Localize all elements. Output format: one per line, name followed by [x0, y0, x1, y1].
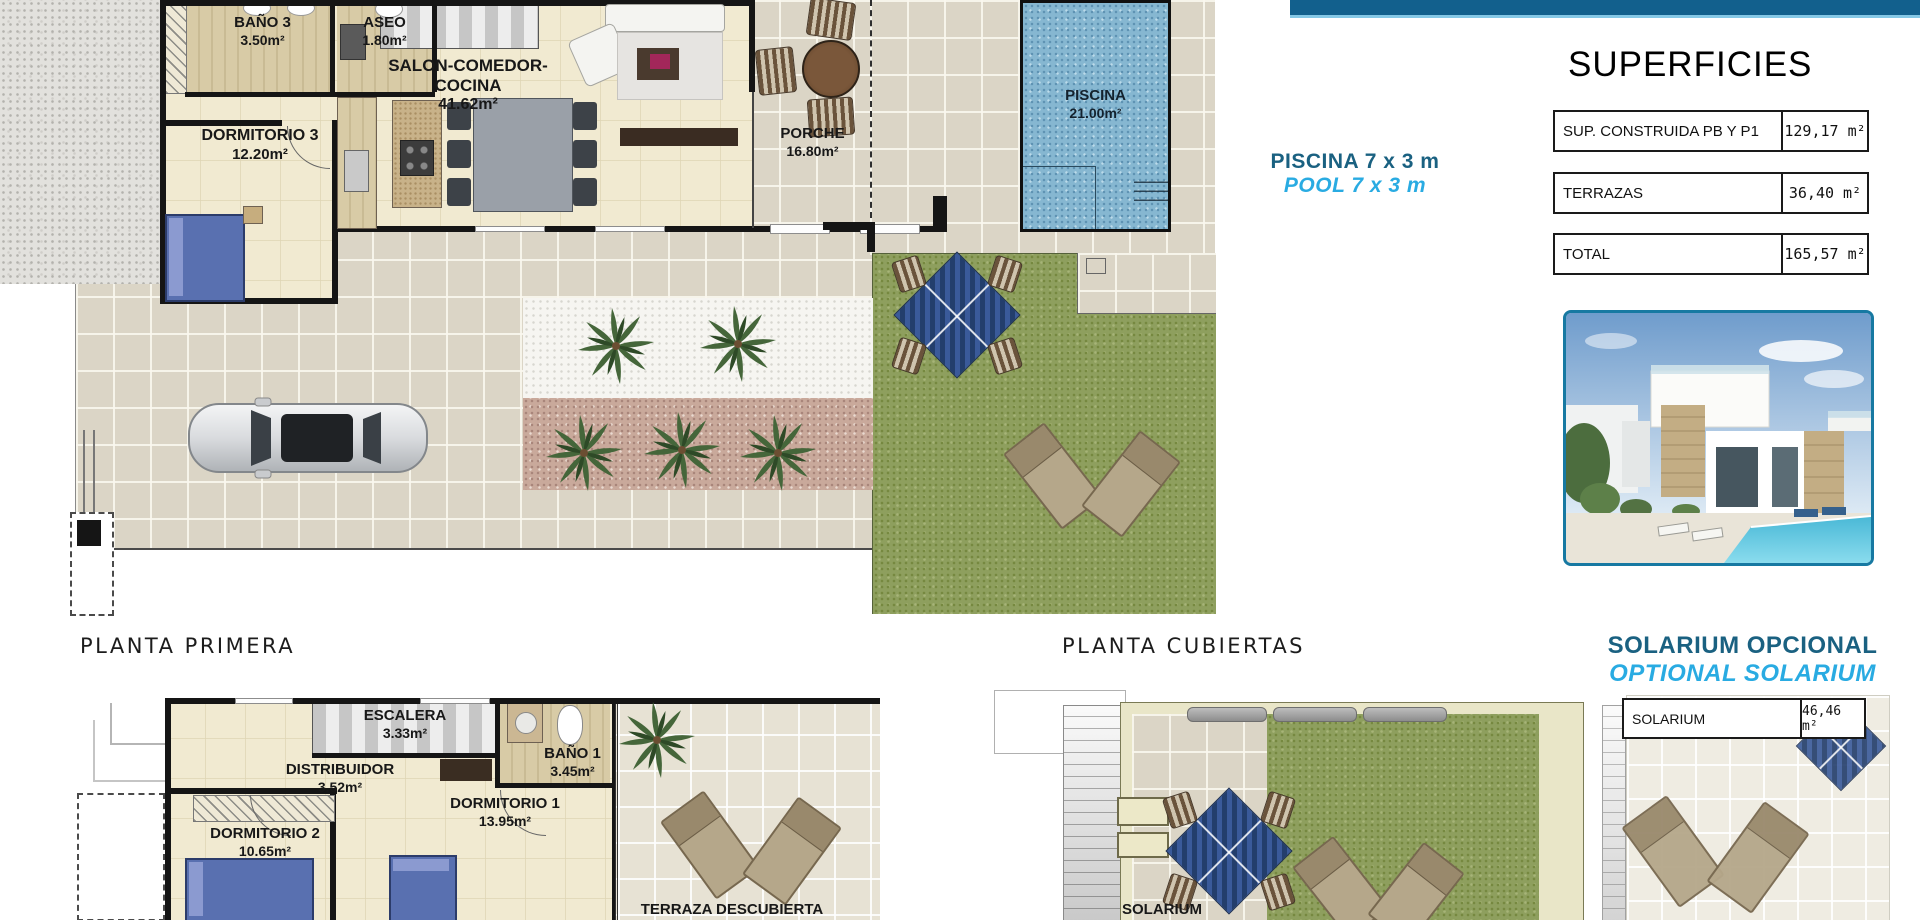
kitchen-sink-icon [344, 150, 369, 192]
bed-pillow [169, 218, 183, 296]
sink-icon [515, 712, 537, 734]
superficies-row-terrazas: TERRAZAS 36,40 m² [1553, 172, 1869, 214]
palm-tree-icon [570, 300, 662, 392]
floorplan-page: PISCINA 21.00m² [0, 0, 1920, 920]
solarium-table-row: SOLARIUM 46,46 m² [1622, 698, 1866, 739]
wall [495, 700, 500, 785]
superficies-row-value: 165,57 m² [1781, 235, 1867, 273]
corner-detail-mark [1086, 258, 1106, 274]
bed-double [185, 858, 314, 920]
nightstand [243, 206, 263, 224]
superficies-row-label: SUP. CONSTRUIDA PB Y P1 [1555, 123, 1781, 140]
pool-ladder [1134, 175, 1168, 201]
solarium-note-en: OPTIONAL SOLARIUM [1605, 660, 1880, 688]
room-label-porche: PORCHE 16.80m² [755, 125, 870, 159]
pergola-beam [1273, 707, 1357, 722]
superficies-row-value: 129,17 m² [1781, 112, 1867, 150]
bench [1117, 832, 1169, 858]
pool-size-note-es: PISCINA 7 x 3 m [1245, 150, 1465, 174]
wall [495, 783, 617, 788]
ground-floor-plan: PISCINA 21.00m² [75, 0, 1215, 613]
bed-pillow [393, 859, 449, 871]
solarium-note-es: SOLARIUM OPCIONAL [1605, 632, 1880, 660]
palm-tree-icon [737, 412, 819, 494]
sofa [605, 4, 725, 32]
dining-table [473, 98, 573, 212]
chair-icon [447, 178, 471, 206]
superficies-row-value: 36,40 m² [1781, 174, 1867, 212]
bed-pillow [189, 862, 203, 916]
wardrobe [440, 759, 492, 781]
pergola-beam [1187, 707, 1267, 722]
porch-table [802, 40, 860, 98]
room-label-dormitorio1: DORMITORIO 1 13.95m² [425, 795, 585, 829]
porch-chair [806, 0, 857, 41]
wall [165, 698, 171, 920]
chair-icon [573, 178, 597, 206]
chair-icon [447, 140, 471, 168]
villa-render-image [1563, 310, 1874, 566]
bed-double [165, 214, 245, 302]
palm-tree-icon [690, 296, 786, 392]
room-label-piscina: PISCINA 21.00m² [1023, 87, 1168, 121]
bed-double [389, 855, 457, 920]
room-label-escalera: ESCALERA 3.33m² [325, 707, 485, 741]
first-floor-plan: ESCALERA 3.33m² DISTRIBUIDOR 3.52m² BAÑO… [75, 695, 880, 920]
room-label-aseo: ASEO 1.80m² [337, 14, 432, 48]
wall [160, 120, 282, 126]
room-label-salon: SALON-COMEDOR-COCINA 41.62m² [373, 56, 563, 115]
window [475, 226, 545, 232]
room-label-banyo3: BAÑO 3 3.50m² [205, 14, 320, 48]
roof-plan-title: PLANTA CUBIERTAS [1062, 634, 1305, 658]
villa-render-graphic [1566, 313, 1871, 563]
chair-icon [573, 102, 597, 130]
pool-size-note: PISCINA 7 x 3 m POOL 7 x 3 m [1245, 150, 1465, 198]
glass-slider [752, 92, 754, 228]
toilet-icon [557, 705, 583, 745]
entry-wall-line [83, 430, 85, 512]
dashed-outline [77, 793, 165, 920]
room-label-dormitorio3: DORMITORIO 3 12.20m² [180, 127, 340, 164]
solarium-row-value: 46,46 m² [1800, 700, 1864, 737]
palm-tree-icon [640, 408, 724, 492]
room-label-solarium: SOLARIUM [1082, 901, 1242, 919]
window [770, 224, 830, 234]
wall [312, 753, 495, 758]
wall [749, 0, 755, 92]
room-label-terraza: TERRAZA DESCUBIERTA [627, 901, 837, 919]
superficies-row-total: TOTAL 165,57 m² [1553, 233, 1869, 275]
first-floor-title: PLANTA PRIMERA [80, 634, 295, 658]
sink-cabinet [507, 703, 543, 743]
entry-wall-line [93, 430, 95, 512]
wall [330, 0, 335, 92]
wall-column [933, 196, 947, 232]
car-top-view [185, 396, 431, 480]
palm-tree-icon [543, 412, 625, 494]
roof-stair-ladder [1063, 705, 1122, 920]
decor-pillow [650, 54, 670, 69]
superficies-row-label: TERRAZAS [1555, 185, 1781, 202]
porch-boundary-dashed [870, 0, 872, 218]
top-accent-bar [1290, 0, 1920, 18]
chair-icon [573, 140, 597, 168]
room-label-distribuidor: DISTRIBUIDOR 3.52m² [260, 761, 420, 795]
pool-size-note-en: POOL 7 x 3 m [1245, 174, 1465, 198]
solarium-row-label: SOLARIUM [1624, 711, 1800, 727]
roof-plan: SOLARIUM [894, 690, 1600, 920]
window [235, 698, 293, 704]
room-label-banyo1: BAÑO 1 3.45m² [530, 745, 615, 779]
superficies-row-label: TOTAL [1555, 246, 1781, 263]
wall [165, 698, 617, 704]
entry-column [77, 520, 101, 546]
wall [867, 222, 875, 252]
pool-steps [1023, 166, 1096, 229]
palm-tree-icon [620, 703, 694, 777]
tv-cabinet [620, 128, 738, 146]
window [420, 698, 490, 704]
room-label-dormitorio2: DORMITORIO 2 10.65m² [185, 825, 345, 859]
pergola-beam [1363, 707, 1447, 722]
swimming-pool: PISCINA 21.00m² [1020, 0, 1171, 232]
wardrobe-hatch [165, 4, 187, 94]
roof-step-outline [93, 720, 167, 782]
superficies-row-construida: SUP. CONSTRUIDA PB Y P1 129,17 m² [1553, 110, 1869, 152]
porch-chair [755, 46, 798, 96]
solarium-note: SOLARIUM OPCIONAL OPTIONAL SOLARIUM [1605, 632, 1880, 688]
superficies-title: SUPERFICIES [1568, 45, 1812, 85]
stove-icon [400, 140, 434, 176]
lawn-corner-notch [1077, 253, 1216, 314]
bench [1117, 797, 1169, 826]
window [595, 226, 665, 232]
